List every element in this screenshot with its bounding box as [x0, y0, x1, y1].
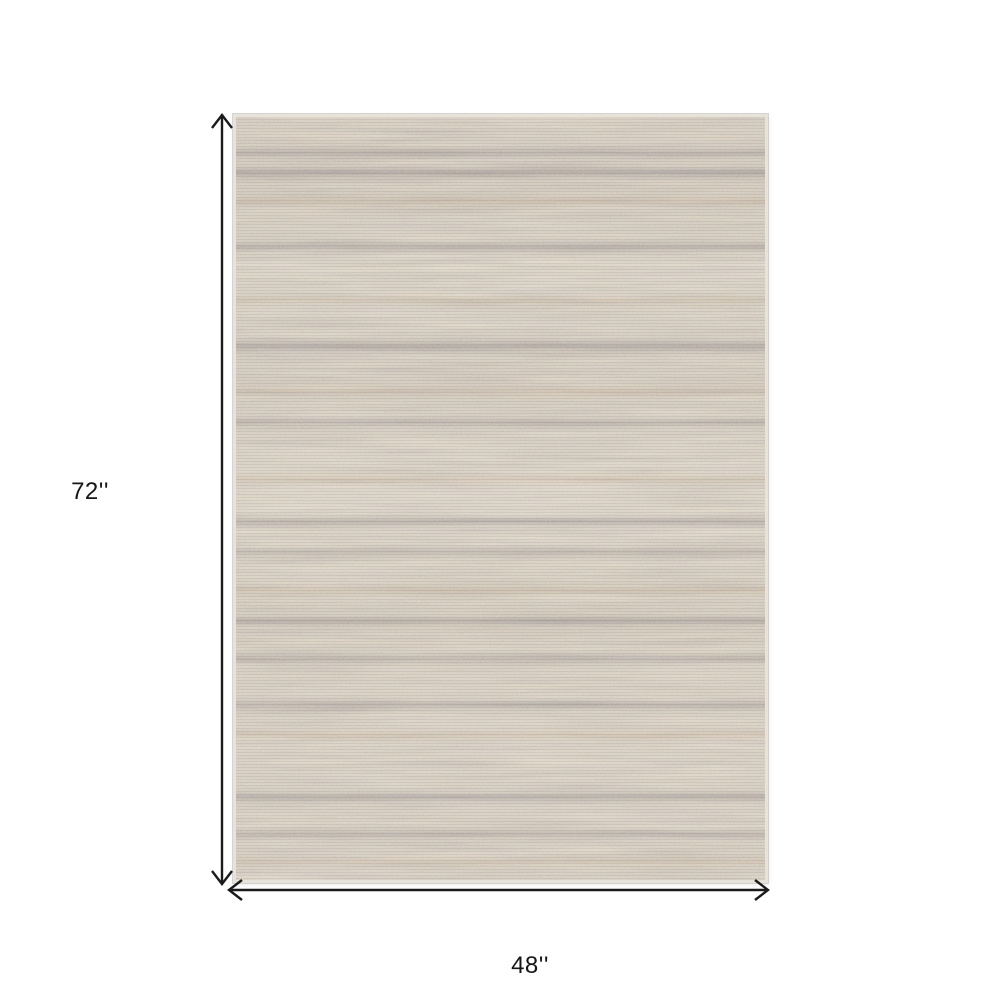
width-arrow-icon [229, 880, 768, 900]
rug-image [233, 114, 768, 883]
rug-texture [236, 117, 765, 880]
height-arrow-icon [212, 115, 232, 884]
rug-dimension-diagram: 72'' 48'' [0, 0, 1000, 1000]
height-dimension-label: 72'' [58, 479, 122, 505]
width-dimension-label: 48'' [498, 953, 562, 979]
